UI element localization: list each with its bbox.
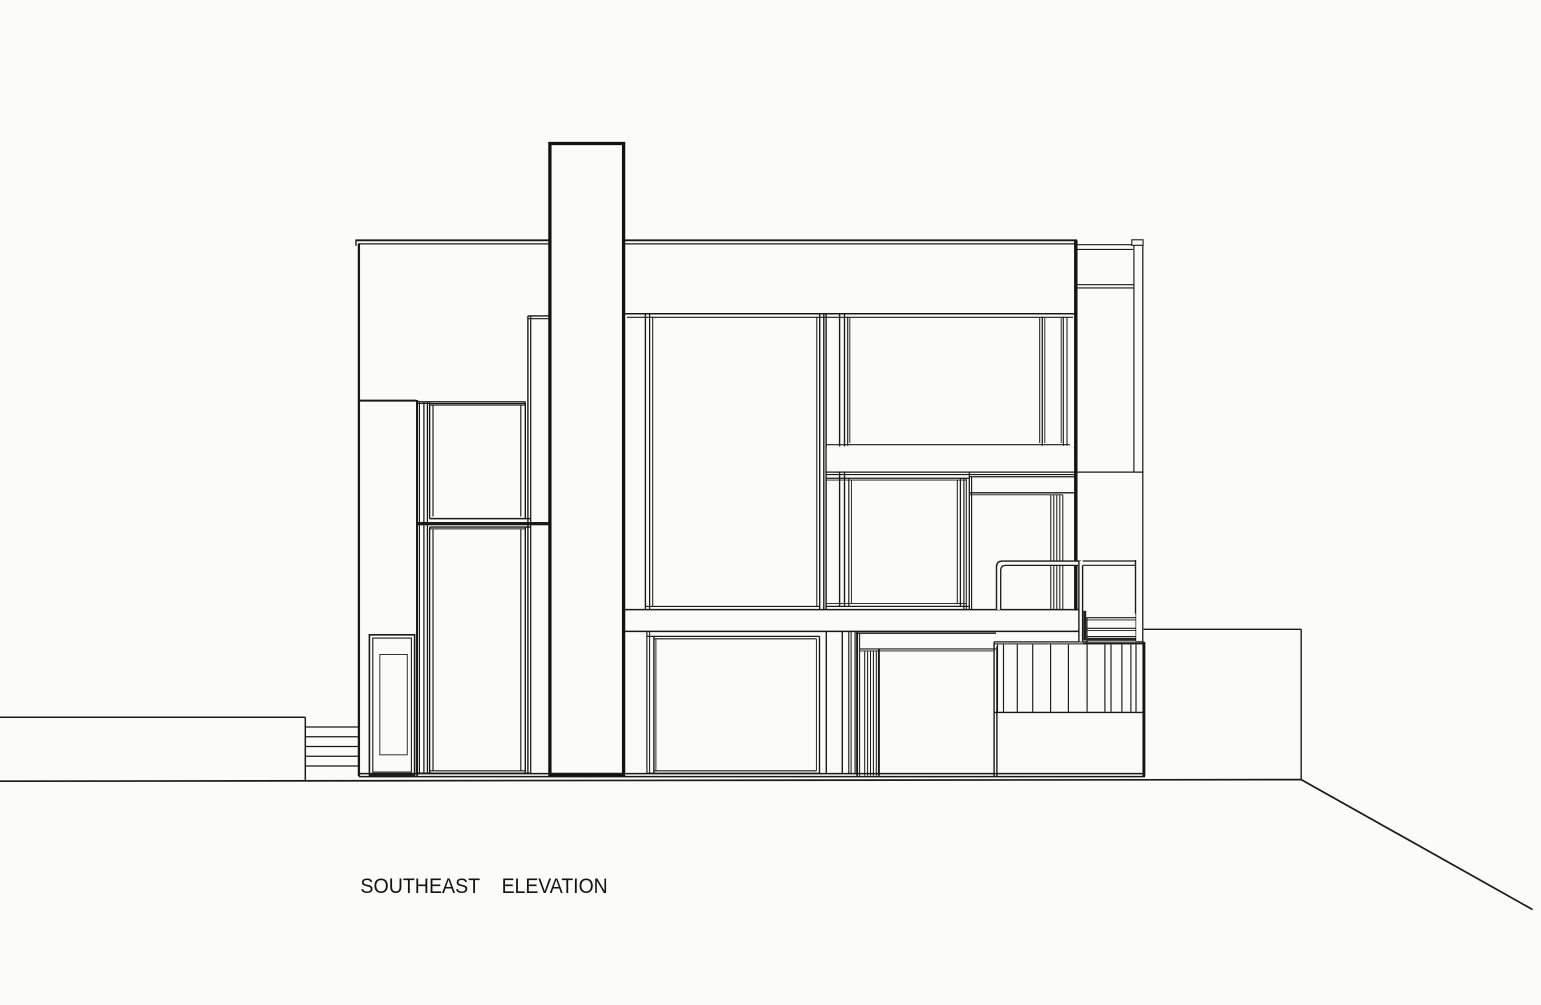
svg-text:SOUTHEAST: SOUTHEAST bbox=[360, 874, 480, 898]
svg-text:ELEVATION: ELEVATION bbox=[502, 874, 608, 898]
